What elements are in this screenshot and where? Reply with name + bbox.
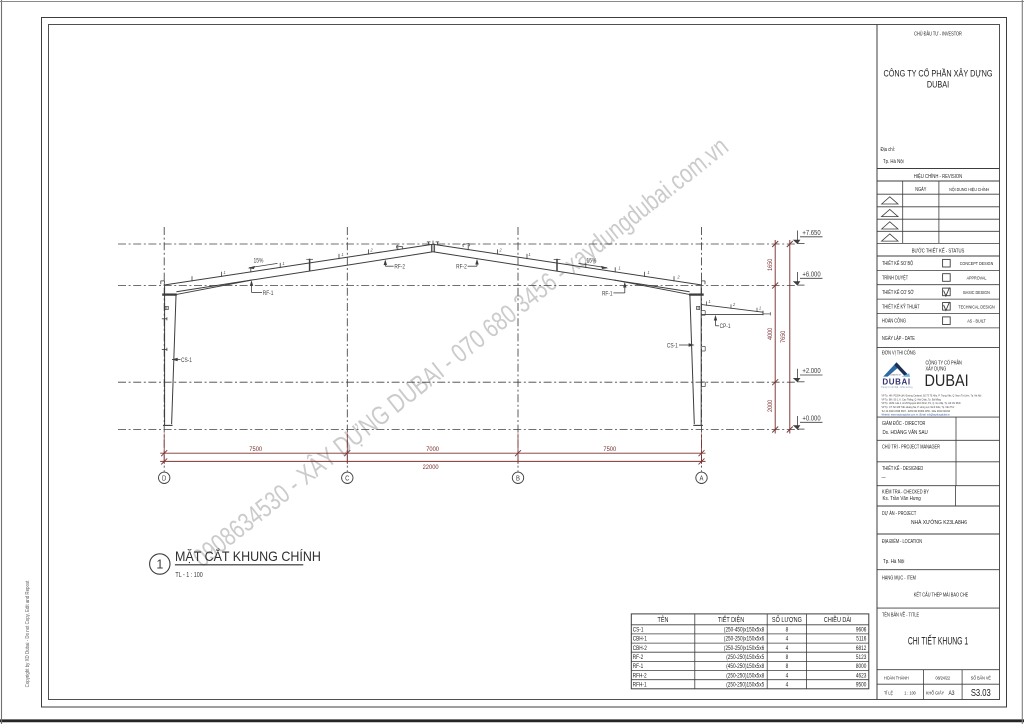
svg-text:THIẾT KẾ SƠ BỘ: THIẾT KẾ SƠ BỘ <box>882 260 914 267</box>
svg-text:B: B <box>516 475 520 483</box>
svg-text:Website: www.xaydungdubai.com.: Website: www.xaydungdubai.com.vn | Email… <box>882 412 951 416</box>
svg-text:9500: 9500 <box>856 682 866 689</box>
svg-text:TÊN: TÊN <box>658 614 669 624</box>
svg-text:RF-2: RF-2 <box>633 655 643 662</box>
svg-text:(250-250)x150x5x6: (250-250)x150x5x6 <box>724 645 764 652</box>
svg-text:Trang trí nội thất - Nhà xưởng: Trang trí nội thất - Nhà xưởng <box>881 386 913 389</box>
svg-text:—: — <box>882 475 886 481</box>
svg-text:RF-1: RF-1 <box>602 291 613 298</box>
svg-text:CBH-1: CBH-1 <box>633 636 647 643</box>
svg-text:8000: 8000 <box>856 664 866 671</box>
svg-text:1: 1 <box>282 261 284 266</box>
svg-text:DUBAIGROUP: DUBAIGROUP <box>890 373 902 376</box>
svg-text:4000: 4000 <box>767 327 773 340</box>
svg-text:Tel: 24 (0224 3339 0607 - 0203: Tel: 24 (0224 3339 0607 - 0203 033 00403… <box>882 408 951 412</box>
svg-text:BASIC DESIGN: BASIC DESIGN <box>963 289 990 295</box>
svg-text:4: 4 <box>786 645 789 652</box>
svg-text:CHI TIẾT KHUNG 1: CHI TIẾT KHUNG 1 <box>908 635 968 647</box>
svg-text:8: 8 <box>786 627 789 634</box>
svg-text:(250-250)150x5x5: (250-250)150x5x5 <box>726 682 764 689</box>
svg-text:CS-1: CS-1 <box>181 357 192 364</box>
svg-text:HOÀN THÀNH: HOÀN THÀNH <box>884 675 909 681</box>
svg-text:4623: 4623 <box>856 673 866 680</box>
svg-text:1650: 1650 <box>767 258 773 271</box>
svg-text:NGÀY: NGÀY <box>915 185 926 192</box>
svg-text:NHÀ XƯỞNG K23LA8H6: NHÀ XƯỞNG K23LA8H6 <box>911 519 967 527</box>
svg-text:RF-2: RF-2 <box>456 264 467 271</box>
svg-text:VP Tp. HN: P2204-Lk4, Đường Ca: VP Tp. HN: P2204-Lk4, Đường Canland, Số … <box>882 393 982 397</box>
svg-text:6812: 6812 <box>856 645 866 652</box>
svg-text:5116: 5116 <box>856 636 866 643</box>
svg-text:22000: 22000 <box>423 464 440 471</box>
svg-text:AS - BUILT: AS - BUILT <box>967 318 986 324</box>
svg-text:15%: 15% <box>587 258 597 265</box>
svg-text:+2.000: +2.000 <box>802 367 820 375</box>
svg-text:(450-250)150x5x8: (450-250)150x5x8 <box>726 664 764 671</box>
svg-text:5123: 5123 <box>856 655 866 662</box>
svg-text:APPROVAL: APPROVAL <box>967 275 987 281</box>
svg-text:NGÀY LẬP - DATE: NGÀY LẬP - DATE <box>882 334 915 341</box>
svg-text:8: 8 <box>786 664 789 671</box>
svg-text:Ds. HOÀNG VĂN SAU: Ds. HOÀNG VĂN SAU <box>883 428 929 436</box>
svg-text:(250-450)x150x5x8: (250-450)x150x5x8 <box>724 627 764 634</box>
svg-text:SỐ BẢN VẼ: SỐ BẢN VẼ <box>971 675 991 681</box>
svg-text:GIÁM ĐỐC - DIRECTOR: GIÁM ĐỐC - DIRECTOR <box>882 419 926 426</box>
svg-text:THIẾT KẾ CƠ SỞ: THIẾT KẾ CƠ SỞ <box>882 288 914 295</box>
svg-text:DUBAI: DUBAI <box>927 78 949 89</box>
svg-text:DUBAI: DUBAI <box>925 372 969 390</box>
svg-text:HOÀN CÔNG: HOÀN CÔNG <box>882 317 906 324</box>
svg-text:+7.650: +7.650 <box>802 229 820 237</box>
svg-text:CỘNG TY CỔ PHẦN: CỘNG TY CỔ PHẦN <box>926 359 962 366</box>
svg-text:7650: 7650 <box>780 330 786 343</box>
svg-text:Tp. Hà Nội: Tp. Hà Nội <box>883 159 904 166</box>
svg-text:CONCEPT DESIGN: CONCEPT DESIGN <box>960 261 994 267</box>
svg-text:(250-250)150x5x5: (250-250)150x5x5 <box>726 655 764 662</box>
svg-text:A: A <box>700 475 704 483</box>
svg-text:RF-2: RF-2 <box>394 264 405 271</box>
svg-text:ĐỊA ĐIỂM - LOCATION: ĐỊA ĐIỂM - LOCATION <box>882 537 922 544</box>
svg-text:RF-1: RF-1 <box>633 664 643 671</box>
svg-text:9606: 9606 <box>856 627 866 634</box>
svg-text:RF-1: RF-1 <box>263 290 274 297</box>
svg-text:CP-1: CP-1 <box>720 324 731 331</box>
svg-text:TL - 1 : 100: TL - 1 : 100 <box>175 571 203 579</box>
svg-text:KẾT CẤU THÉP MÁI BAO CHE: KẾT CẤU THÉP MÁI BAO CHE <box>914 591 968 598</box>
svg-text:ĐƠN VỊ THI CÔNG: ĐƠN VỊ THI CÔNG <box>882 349 916 356</box>
svg-text:1: 1 <box>618 266 620 271</box>
svg-text:1: 1 <box>708 299 710 304</box>
svg-text:RFH-2: RFH-2 <box>633 673 647 680</box>
svg-text:8: 8 <box>786 655 789 662</box>
svg-text:DỰ ÁN - PROJECT: DỰ ÁN - PROJECT <box>882 509 916 516</box>
svg-text:4: 4 <box>786 682 789 689</box>
svg-text:1 : 100: 1 : 100 <box>904 690 916 696</box>
svg-text:CS-1: CS-1 <box>667 343 678 350</box>
svg-text:A3: A3 <box>948 690 954 697</box>
svg-text:+6.000: +6.000 <box>802 271 820 279</box>
svg-text:7000: 7000 <box>426 446 439 453</box>
svg-text:HẠNG MỤC - ITEM: HẠNG MỤC - ITEM <box>882 575 916 581</box>
svg-text:7500: 7500 <box>249 446 262 453</box>
svg-text:4: 4 <box>786 673 789 680</box>
svg-text:+0.000: +0.000 <box>802 415 820 423</box>
svg-text:2000: 2000 <box>767 399 773 412</box>
svg-text:CÔNG TY CỔ PHẦN XÂY DỰNG: CÔNG TY CỔ PHẦN XÂY DỰNG <box>883 66 992 78</box>
svg-text:S3.03: S3.03 <box>971 687 991 698</box>
svg-text:1: 1 <box>341 252 343 257</box>
svg-text:CHỦ ĐẦU TƯ - INVESTOR: CHỦ ĐẦU TƯ - INVESTOR <box>914 30 962 37</box>
svg-text:4: 4 <box>786 636 789 643</box>
svg-text:Copyright by XD Dubai - Do not: Copyright by XD Dubai - Do not Copy, Edi… <box>25 580 31 687</box>
svg-text:D: D <box>162 475 166 483</box>
svg-text:THIẾT KẾ KỸ THUẬT: THIẾT KẾ KỸ THUẬT <box>882 303 920 310</box>
svg-text:CS-1: CS-1 <box>633 627 644 634</box>
svg-text:(250-250)x150x5x6: (250-250)x150x5x6 <box>724 636 764 643</box>
svg-text:THIẾT KẾ - DESIGNED: THIẾT KẾ - DESIGNED <box>882 464 924 471</box>
svg-text:TECHNICAL DESIGN: TECHNICAL DESIGN <box>958 304 994 310</box>
svg-text:KHỔ GIẤY: KHỔ GIẤY <box>926 690 944 696</box>
svg-text:1: 1 <box>759 306 761 311</box>
svg-text:KIỂM TRA - CHECKED BY: KIỂM TRA - CHECKED BY <box>882 488 929 495</box>
svg-text:7500: 7500 <box>603 446 616 453</box>
svg-text:TỈ LỆ: TỈ LỆ <box>884 690 893 696</box>
svg-text:08/24/22: 08/24/22 <box>936 675 951 681</box>
svg-text:Tp. Hà Nội: Tp. Hà Nội <box>883 559 904 566</box>
svg-text:C: C <box>345 475 349 483</box>
svg-text:NỘI DUNG HIỆU CHỈNH: NỘI DUNG HIỆU CHỈNH <box>949 186 989 192</box>
svg-text:1: 1 <box>647 270 649 275</box>
svg-text:VP Tp. CT: Số 160 Trần Hoàng N: VP Tp. CT: Số 160 Trần Hoàng Na, P. Hưng… <box>882 405 955 409</box>
svg-text:RFH-1: RFH-1 <box>633 682 647 689</box>
svg-text:MẶT CẮT KHUNG CHÍNH: MẶT CẮT KHUNG CHÍNH <box>175 548 321 564</box>
svg-text:Ks. Trần Văn Hưng: Ks. Trần Văn Hưng <box>883 496 921 503</box>
svg-text:(250-250)150x5x8: (250-250)150x5x8 <box>726 673 764 680</box>
svg-text:15%: 15% <box>254 258 264 265</box>
svg-text:1: 1 <box>156 557 163 571</box>
svg-text:CHỦ TRÌ - PROJECT MANAGER: CHỦ TRÌ - PROJECT MANAGER <box>882 443 941 450</box>
svg-text:1: 1 <box>528 252 530 257</box>
svg-text:CBH-2: CBH-2 <box>633 645 647 652</box>
svg-text:1: 1 <box>223 270 225 275</box>
